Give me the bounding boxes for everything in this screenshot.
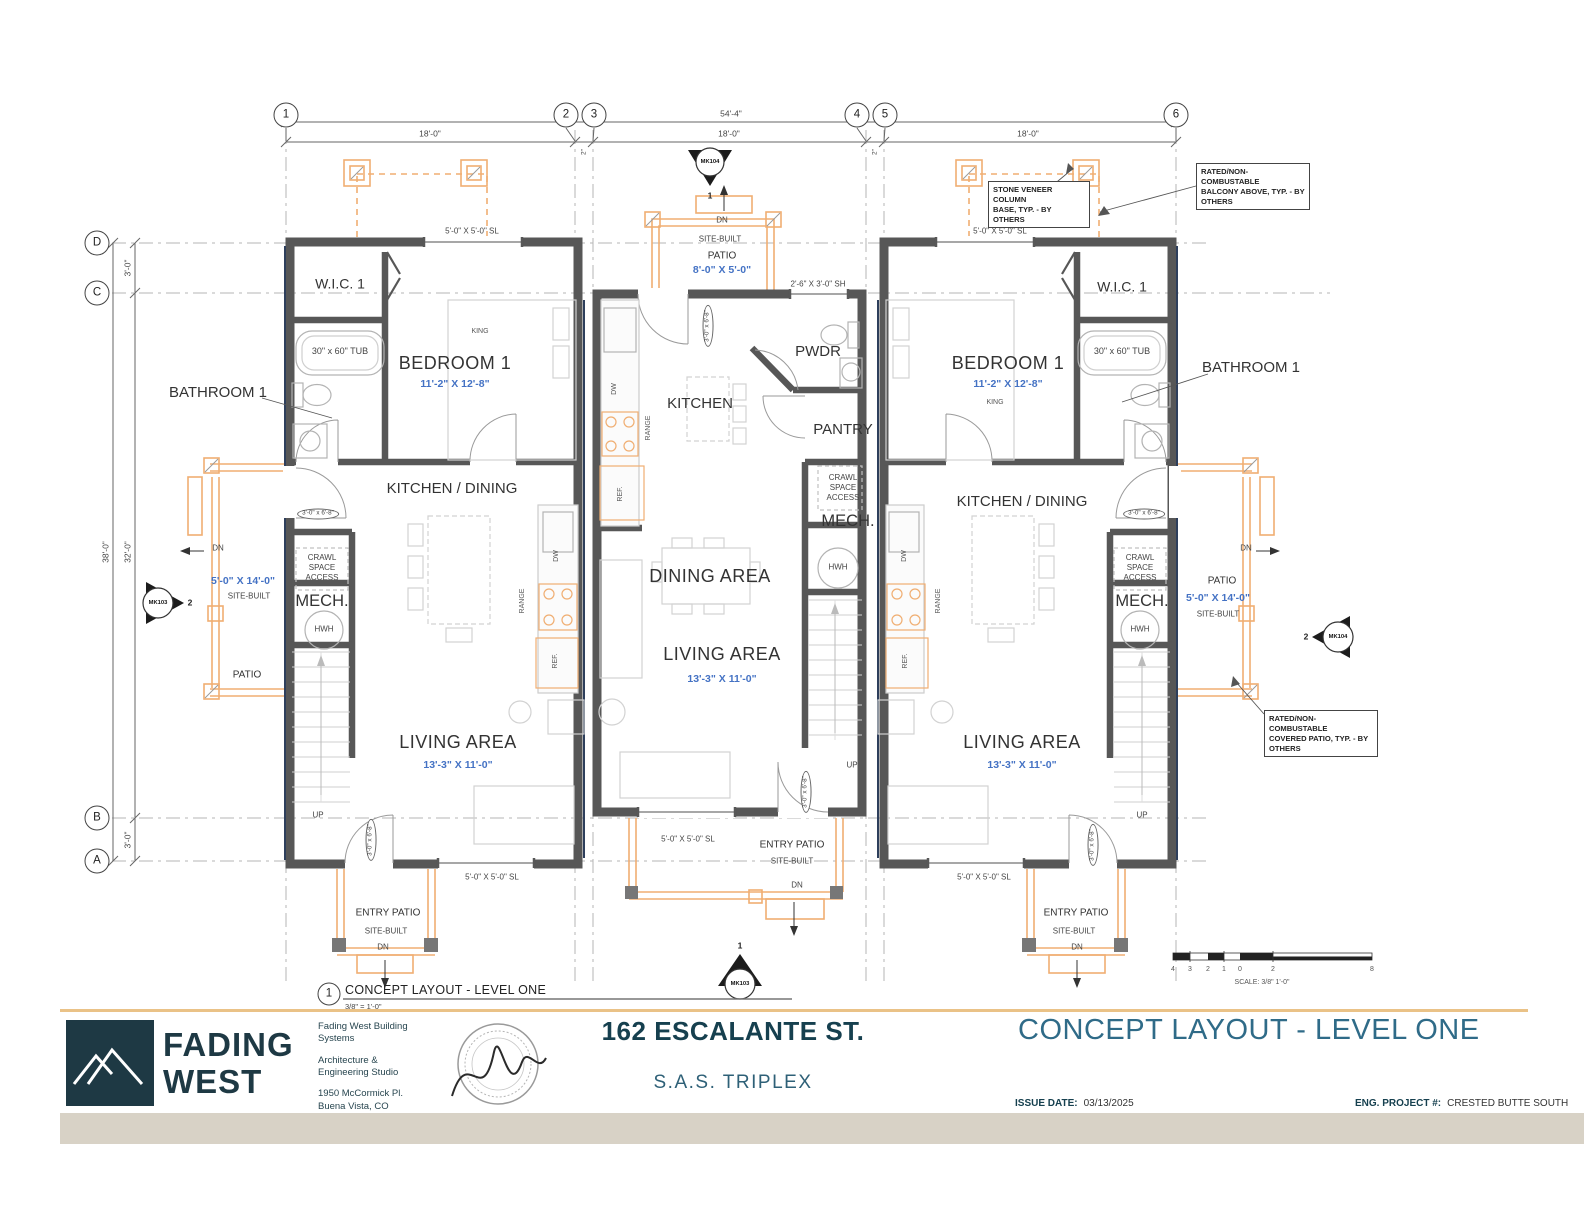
grid-bubble-D: D [85,231,110,256]
tub-label: 30" x 60" TUB [1094,347,1150,357]
room-dim: 13'-3" X 11'-0" [423,760,492,772]
project-address: 162 ESCALANTE ST. [602,1016,865,1047]
dn-label: DN [791,882,803,891]
marker-num: 2 [1304,632,1309,641]
room-dim: 11'-2" X 12'-8" [420,379,489,391]
scale-num: 4 [1171,966,1175,974]
patio-label: PATIO [708,251,737,262]
dim-bay: 18'-0" [718,129,740,138]
room-dim: 13'-3" X 11'-0" [987,760,1056,772]
engineer-stamp [438,1014,558,1122]
up-label: UP [1136,812,1147,821]
appliance-range: RANGE [935,589,943,614]
room-mech: MECH. [295,592,348,610]
view-title: CONCEPT LAYOUT - LEVEL ONE [345,983,546,997]
scale-bar [1173,951,1372,962]
room-bedroom: BEDROOM 1 [952,354,1065,374]
dim-mid: 32'-0" [123,541,132,563]
room-pwdr: PWDR [795,344,841,361]
grid-bubble-6: 6 [1164,103,1189,128]
marker-num: 1 [738,941,743,950]
fading-west-logo [66,1020,154,1106]
dim-gap: 2" [580,149,587,155]
grid-bubble-5: 5 [873,103,898,128]
dn-label: DN [377,944,389,953]
dn-label: DN [1071,944,1083,953]
crawl-space-label: CRAWL SPACE ACCESS [1124,553,1157,583]
room-kitchen-dining: KITCHEN / DINING [387,481,518,498]
room-living: LIVING AREA [963,733,1081,753]
sheet-title: CONCEPT LAYOUT - LEVEL ONE [1018,1014,1480,1047]
dim-overall-width: 54'-4" [720,109,742,118]
door-tag: 3'-0" x 6'-8" [366,819,377,861]
patio-label: PATIO [233,670,262,681]
titleblock-divider [60,1009,1528,1012]
crawl-space-label: CRAWL SPACE ACCESS [827,473,860,503]
issue-date: ISSUE DATE:03/13/2025 [1015,1098,1134,1109]
view-number: 1 [318,983,341,1006]
room-wic: W.I.C. 1 [1097,279,1147,294]
crawl-space-label: CRAWL SPACE ACCESS [306,553,339,583]
patio-dim: 5'-0" X 14'-0" [211,576,275,588]
appliance-dw: DW [553,550,561,562]
grid-bubble-3: 3 [582,103,607,128]
grid-bubble-2: 2 [554,103,579,128]
room-dim: 13'-3" X 11'-0" [687,674,756,686]
note-balcony: RATED/NON-COMBUSTABLE BALCONY ABOVE, TYP… [1196,163,1310,210]
site-built-label: SITE-BUILT [365,928,408,937]
site-built-label: SITE-BUILT [228,593,271,602]
room-kitchen-dining: KITCHEN / DINING [957,494,1088,511]
up-label: UP [312,812,323,821]
patio-dim: 8'-0" X 5'-0" [693,265,751,277]
logo-line1: FADING [163,1026,294,1063]
firm-studio: Architecture & Engineering Studio [318,1055,408,1080]
site-built-label: SITE-BUILT [771,858,814,867]
grid-bubble-A: A [85,849,110,874]
scale-num: 8 [1370,966,1374,974]
eng-project: ENG. PROJECT #:CRESTED BUTTE SOUTH [1355,1098,1568,1109]
site-built-label: SITE-BUILT [1197,611,1240,620]
scale-num: 1 [1222,966,1226,974]
marker-mk103-bottom: MK103 [731,981,750,987]
tub-label: 30" x 60" TUB [312,347,368,357]
window-label: 5'-0" X 5'-0" SL [445,228,499,237]
site-built-label: SITE-BUILT [1053,928,1096,937]
bottom-bar [60,1113,1584,1144]
door-tag: 3'-0" x 6'-8" [297,509,339,520]
project-name: S.A.S. TRIPLEX [654,1072,813,1094]
dim-bay: 18'-0" [1017,129,1039,138]
dn-label: DN [212,545,224,554]
patio-dim: 5'-0" X 14'-0" [1186,593,1250,605]
dn-label: DN [1240,545,1252,554]
appliance-ref: REF. [902,653,910,668]
room-bedroom: BEDROOM 1 [399,354,512,374]
firm-name: Fading West Building Systems [318,1021,408,1046]
marker-num: 2 [188,598,193,607]
room-wic: W.I.C. 1 [315,276,365,291]
hwh-label: HWH [1130,626,1149,635]
window-label: 5'-0" X 5'-0" SL [973,228,1027,237]
logo-wordmark: FADING WEST [163,1026,294,1100]
appliance-range: RANGE [645,416,653,441]
door-tag: 3'-0" x 6'-8" [801,771,812,813]
entry-patio-label: ENTRY PATIO [356,908,421,919]
appliance-ref: REF. [552,653,560,668]
scale-num: 0 [1238,966,1242,974]
patio-label: PATIO [1208,576,1237,587]
eng-project-label: ENG. PROJECT #: [1355,1098,1441,1109]
hwh-label: HWH [828,564,847,573]
grid-bubble-C: C [85,281,110,306]
up-label: UP [846,762,857,771]
scale-num: 2 [1271,966,1275,974]
eng-project-value: CRESTED BUTTE SOUTH [1447,1098,1568,1109]
site-built-label: SITE-BUILT [699,236,742,245]
scale-num: 3 [1188,966,1192,974]
entry-patio-label: ENTRY PATIO [1044,908,1109,919]
dim-bay: 18'-0" [419,129,441,138]
room-bathroom: BATHROOM 1 [169,385,267,402]
room-mech: MECH. [1115,592,1168,610]
window-label: 5'-0" X 5'-0" SL [661,836,715,845]
room-dining: DINING AREA [649,567,771,587]
note-covered-patio: RATED/NON-COMBUSTABLE COVERED PATIO, TYP… [1264,710,1378,757]
hwh-label: HWH [314,626,333,635]
marker-mk104-top: MK104 [701,159,720,165]
appliance-dw: DW [611,383,619,395]
marker-mk104-right: MK104 [1329,634,1348,640]
issue-date-label: ISSUE DATE: [1015,1098,1078,1109]
bed-king-label: KING [986,399,1003,407]
grid-bubble-1: 1 [274,103,299,128]
room-living: LIVING AREA [399,733,517,753]
appliance-ref: REF. [617,486,625,501]
logo-line2: WEST [163,1063,294,1100]
scale-caption: SCALE: 3/8" 1'-0" [1235,979,1290,987]
note-stone-veneer: STONE VENEER COLUMN BASE, TYP. - BY OTHE… [988,181,1090,228]
appliance-range: RANGE [519,589,527,614]
room-kitchen: KITCHEN [667,396,733,413]
room-mech: MECH. [821,512,874,530]
room-bathroom: BATHROOM 1 [1202,360,1300,377]
grid-bubble-B: B [85,806,110,831]
marker-mk103-left: MK103 [149,600,168,606]
dim-edge: 3'-0" [123,260,132,277]
door-tag: 3'-0" x 6'-8" [1088,824,1099,866]
window-label: 5'-0" X 5'-0" SL [465,874,519,883]
grid-bubble-4: 4 [845,103,870,128]
room-dim: 11'-2" X 12'-8" [973,379,1042,391]
door-tag: 3'-0" x 6'-8" [1123,509,1165,520]
dim-overall-height: 38'-0" [101,541,110,563]
window-label: 5'-0" X 5'-0" SL [957,874,1011,883]
dn-label: DN [716,217,728,226]
door-tag: 3'-0" x 6'-8" [703,305,714,347]
dim-gap: 2" [871,149,878,155]
appliance-dw: DW [901,550,909,562]
drawing-sheet: 1 2 3 4 5 6 D C B A 54'-4" 18'-0" 18'-0"… [0,0,1584,1224]
room-pantry: PANTRY [813,422,872,439]
entry-patio-label: ENTRY PATIO [760,840,825,851]
bed-king-label: KING [471,328,488,336]
windows [424,236,1034,869]
dim-edge: 3'-0" [123,832,132,849]
scale-num: 2 [1206,966,1210,974]
window-label: 2'-6" X 3'-0" SH [791,281,846,290]
marker-num: 1 [708,191,713,200]
room-living: LIVING AREA [663,645,781,665]
issue-date-value: 03/13/2025 [1084,1098,1134,1109]
